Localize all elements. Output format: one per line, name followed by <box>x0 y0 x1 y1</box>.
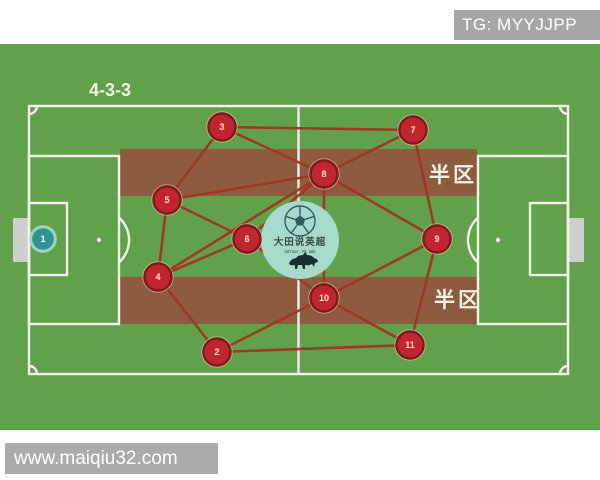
player-number: 10 <box>319 293 329 303</box>
formation-label: 4-3-3 <box>89 80 131 100</box>
logo-title: 大田说英超 <box>274 236 327 248</box>
tactics-board: 大田说英超 daTian - PL talk 1234567891011 4-3… <box>0 0 600 480</box>
player-node-3[interactable]: 3 <box>207 112 237 142</box>
goal-left <box>13 218 29 262</box>
player-node-2[interactable]: 2 <box>202 337 232 367</box>
logo-subtitle: daTian - PL talk <box>284 249 316 254</box>
website-watermark-banner: www.maiqiu32.com <box>5 443 218 474</box>
penalty-spot-right <box>496 238 500 242</box>
player-number: 7 <box>410 125 415 135</box>
player-number: 4 <box>155 272 160 282</box>
player-node-4[interactable]: 4 <box>143 262 173 292</box>
player-number: 11 <box>405 340 415 350</box>
player-node-9[interactable]: 9 <box>422 224 452 254</box>
club-logo: 大田说英超 daTian - PL talk <box>261 201 339 279</box>
player-node-6[interactable]: 6 <box>232 224 262 254</box>
player-node-8[interactable]: 8 <box>309 159 339 189</box>
penalty-spot-left <box>97 238 101 242</box>
telegram-watermark-banner: TG: MYYJJPP <box>454 10 600 40</box>
player-node-7[interactable]: 7 <box>398 115 428 145</box>
player-node-11[interactable]: 11 <box>395 330 425 360</box>
website-url-text: www.maiqiu32.com <box>14 448 178 470</box>
zone-label-bottom: 半区 <box>434 288 482 312</box>
zone-label-top: 半区 <box>429 163 477 187</box>
pitch-diagram: 大田说英超 daTian - PL talk 1234567891011 4-3… <box>0 0 600 480</box>
player-node-1[interactable]: 1 <box>30 226 57 253</box>
player-number: 6 <box>244 234 249 244</box>
player-number: 9 <box>434 234 439 244</box>
player-number: 5 <box>164 195 169 205</box>
telegram-handle-text: TG: MYYJJPP <box>462 15 577 35</box>
player-number: 3 <box>219 122 224 132</box>
player-node-10[interactable]: 10 <box>309 283 339 313</box>
player-number: 8 <box>321 169 326 179</box>
player-number: 1 <box>40 234 45 244</box>
player-node-5[interactable]: 5 <box>152 185 182 215</box>
player-number: 2 <box>214 347 219 357</box>
goal-right <box>568 218 584 262</box>
